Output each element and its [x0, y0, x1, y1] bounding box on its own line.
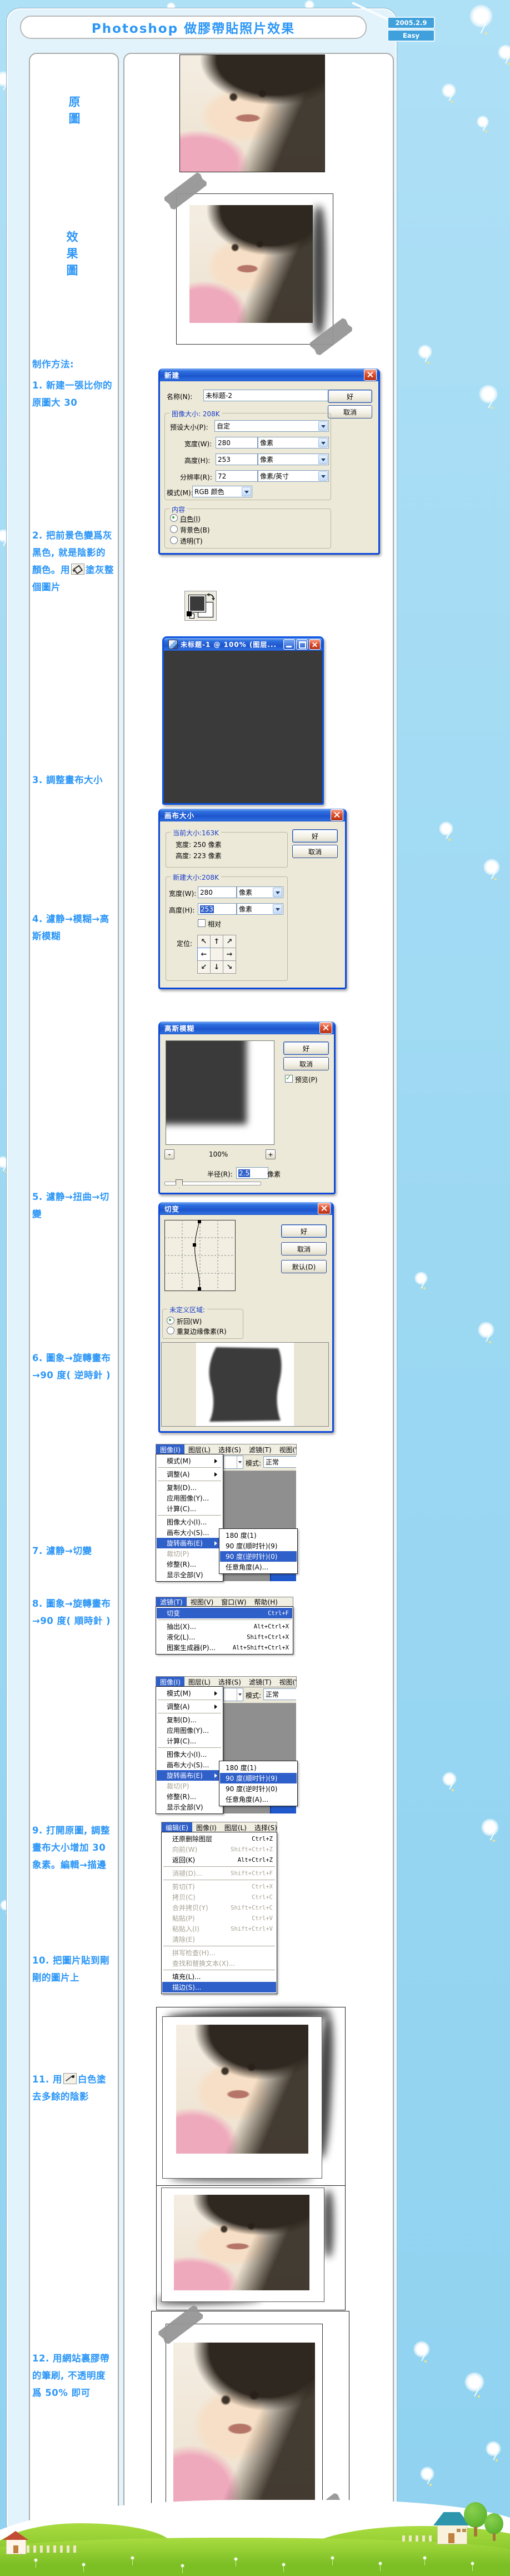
sidebar-panel	[29, 53, 119, 2533]
flower	[282, 2563, 285, 2566]
flower	[82, 2563, 85, 2566]
menu-item[interactable]: 计算(C)...	[157, 1503, 222, 1514]
paint-bucket-icon	[71, 564, 84, 575]
name-input[interactable]: 未标题-2	[203, 390, 334, 401]
options-toolbar: 模式: 正常	[221, 1454, 296, 1471]
shear-dialog: 切变 好 取消 默认(D) 未定义区域: 折回(W) 重复边缘像素(R)	[158, 1202, 334, 1433]
blend-mode-select[interactable]: 正常	[263, 1456, 296, 1468]
menu-item[interactable]: 90 度(顺时针)(9)	[220, 1541, 297, 1551]
dialog-titlebar[interactable]: 高斯模糊	[160, 1022, 334, 1034]
options-toolbar: 模式: 正常	[221, 1686, 296, 1703]
step11-result-image	[156, 2185, 346, 2310]
flower	[379, 2562, 382, 2565]
dandelion-fluff	[481, 1818, 499, 1836]
menu-item[interactable]: 切变Ctrl+F	[157, 1608, 292, 1618]
menu-item[interactable]: 图像大小(I)...	[157, 1517, 222, 1527]
anchor-grid[interactable]: ↖↑↗←→↙↓↘	[198, 935, 236, 974]
date-badge: 2005.2.9	[387, 17, 435, 29]
zoom-in-button[interactable]: +	[266, 1149, 276, 1159]
sidebar-step-10: 10. 把圖片貼到剛剛的圖片上	[32, 1952, 114, 1986]
menu-item[interactable]: 90 度(逆时针)(0)	[220, 1551, 297, 1562]
final-photo	[173, 2343, 315, 2502]
dialog-titlebar[interactable]: 新建	[160, 368, 378, 381]
anchor-cell[interactable]: ↓	[210, 960, 223, 974]
dandelion-fluff	[469, 4, 493, 28]
menu-item[interactable]: 描边(S)...	[162, 1982, 276, 1992]
anchor-cell[interactable]: ↗	[223, 935, 236, 948]
fence-right	[402, 2535, 433, 2542]
menu-item[interactable]: 应用图像(Y)...	[157, 1493, 222, 1503]
menu-item[interactable]: 图像大小(I)...	[157, 1749, 222, 1760]
dialog-title: 切变	[164, 1203, 179, 1214]
menu-item[interactable]: 填充(L)...	[162, 1971, 276, 1982]
dialog-titlebar[interactable]: 切变	[160, 1202, 332, 1215]
dandelion-fluff	[442, 1772, 457, 1786]
foreground-background-swatch[interactable]	[184, 591, 217, 621]
dandelion-fluff	[464, 2372, 484, 2392]
menubar-item[interactable]: 图层(L)	[184, 1677, 214, 1687]
menubar-item[interactable]: 选择(S)	[251, 1822, 277, 1832]
dandelion-fluff	[477, 116, 489, 128]
menu-item[interactable]: 抽出(X)...Alt+Ctrl+X	[157, 1621, 292, 1632]
house-window	[457, 2529, 461, 2532]
menu-item[interactable]: 拷贝(C)Ctrl+C	[162, 1892, 276, 1902]
current-height: 高度: 223 像素	[176, 851, 222, 860]
shear-preview	[161, 1342, 329, 1427]
document-icon	[168, 640, 178, 649]
menu-item[interactable]: 复制(D)...	[157, 1482, 222, 1493]
menu-item[interactable]: 旋转画布(E)	[157, 1770, 222, 1781]
anchor-label: 定位:	[177, 939, 192, 948]
name-label: 名称(N):	[167, 392, 192, 401]
dandelion-fluff	[418, 345, 432, 359]
flower	[131, 2557, 134, 2559]
menu-item[interactable]: 修整(R)...	[157, 1559, 222, 1569]
blend-mode-select[interactable]: 正常	[263, 1688, 296, 1700]
image-menu-panel: 模式(M)调整(A)复制(D)...应用图像(Y)...计算(C)...图像大小…	[156, 1686, 223, 1814]
menubar-item[interactable]: 编辑(E)	[162, 1822, 192, 1832]
menu-item[interactable]: 裁切(P)	[157, 1781, 222, 1791]
info-badges: 2005.2.9 Easy	[387, 17, 435, 42]
menubar-item[interactable]: 选择(S)	[214, 1677, 245, 1687]
zoom-out-button[interactable]: -	[164, 1149, 174, 1159]
menubar-item[interactable]: 滤镜(T)	[156, 1597, 187, 1607]
menu-item[interactable]: 模式(M)	[157, 1688, 222, 1698]
ok-button[interactable]: 好	[328, 390, 372, 403]
menu-item[interactable]: 裁切(P)	[157, 1548, 222, 1559]
width-unit-select[interactable]: 像素	[237, 886, 283, 898]
menu-item[interactable]: 液化(L)...Shift+Ctrl+X	[157, 1632, 292, 1642]
fence-left	[27, 2545, 78, 2553]
page-title: Photoshop 做膠帶貼照片效果	[92, 18, 295, 37]
width-unit-select[interactable]: 像素	[258, 437, 329, 449]
dandelion-fluff	[442, 83, 456, 98]
menu-item[interactable]: 应用图像(Y)...	[157, 1725, 222, 1736]
shadow-right	[323, 2190, 333, 2257]
house-door	[13, 2545, 18, 2553]
title-bar: Photoshop 做膠帶貼照片效果	[20, 16, 367, 39]
menu-item[interactable]: 180 度(1)	[220, 1530, 297, 1541]
page: Photoshop 做膠帶貼照片效果 2005.2.9 Easy 原圖 效果圖 …	[0, 0, 510, 2576]
menu-item[interactable]: 粘贴(P)Ctrl+V	[162, 1913, 276, 1924]
preview-checkbox[interactable]	[285, 1075, 293, 1083]
blurred-square	[166, 1040, 247, 1124]
preset-label: 预设大小(P):	[170, 422, 208, 432]
sidebar-step-9: 9. 打開原圖, 調整畫布大小增加 30 象素。編輯→描邊	[32, 1822, 114, 1874]
height-input[interactable]: 253	[216, 454, 258, 465]
menubar-item[interactable]: 图像(I)	[156, 1444, 184, 1454]
image-menu-screenshot-ccw: 模式: 正常 图像(I)图层(L)选择(S)滤镜(T)视图(V 模式(M)调整(…	[156, 1444, 296, 1581]
menu-item[interactable]: 消褪(D)...Shift+Ctrl+F	[162, 1868, 276, 1879]
menu-item[interactable]: 90 度(逆时针)(0)	[220, 1783, 297, 1794]
menubar-item[interactable]: 视图(V)	[187, 1597, 218, 1607]
flower	[331, 2557, 334, 2559]
radio-white[interactable]	[170, 514, 178, 522]
dialog-titlebar[interactable]: 画布大小	[160, 809, 345, 821]
minimize-button[interactable]	[283, 639, 295, 650]
flower	[181, 2564, 184, 2567]
menubar-item[interactable]: 滤镜(T)	[245, 1677, 276, 1687]
anchor-cell[interactable]: →	[223, 948, 236, 961]
menubar-item[interactable]: 帮助(H)	[251, 1597, 282, 1607]
zoom-level: 100%	[209, 1150, 228, 1158]
current-size-group: 当前大小:163K	[166, 832, 288, 868]
close-icon[interactable]	[331, 809, 343, 821]
height-unit-select[interactable]: 像素	[258, 454, 329, 465]
original-photo	[179, 54, 325, 172]
default-colors-icon[interactable]	[187, 611, 194, 619]
height-label: 高度(H):	[184, 456, 210, 465]
current-width: 宽度: 250 像素	[176, 840, 222, 849]
width-input[interactable]: 280	[216, 437, 258, 449]
blur-preview	[166, 1040, 274, 1145]
document-window: 未标题-1 @ 100% (图层...	[162, 636, 324, 805]
menu-item[interactable]: 旋转画布(E)	[157, 1538, 222, 1548]
dandelion-fluff	[498, 44, 510, 60]
label-original-image: 原圖	[66, 96, 82, 129]
gaussian-blur-dialog: 高斯模糊 - 100% + 半径(R): 2.5 像素 好 取消 预览(P)	[158, 1022, 336, 1194]
sidebar-step-1: 1. 新建一張比你的原圖大 30	[32, 377, 114, 411]
effect-photo-image	[189, 205, 313, 323]
sidebar-step-5: 5. 濾静→扭曲→切變	[32, 1188, 114, 1223]
menu-item[interactable]: 粘贴入(I)Shift+Ctrl+V	[162, 1924, 276, 1934]
image-menu-panel: 模式(M)调整(A)复制(D)...应用图像(Y)...计算(C)...图像大小…	[156, 1454, 223, 1582]
sidebar-step-6: 6. 圖象→旋轉畫布→90 度( 逆時針 )	[32, 1349, 114, 1384]
menubar: 图像(I)图层(L)选择(S)滤镜(T)视图(V	[156, 1444, 297, 1455]
menu-item[interactable]: 拼写检查(H)...	[162, 1947, 276, 1958]
house-door	[448, 2533, 454, 2543]
dandelion-fluff	[413, 2341, 430, 2358]
menubar-item[interactable]: 图层(L)	[184, 1444, 214, 1454]
menubar-item[interactable]: 图像(I)	[156, 1677, 184, 1687]
swap-colors-icon[interactable]	[207, 594, 214, 600]
house-window	[462, 2529, 466, 2532]
maximize-button[interactable]	[296, 639, 308, 650]
dandelion-fluff	[414, 1272, 428, 1285]
sidebar-step-11: 11. 用白色塗去多餘的陰影	[32, 2071, 114, 2105]
dandelion-fluff	[479, 385, 498, 403]
tree-trunk	[493, 2533, 496, 2541]
label-effect-image: 效果圖	[63, 231, 80, 281]
default-button[interactable]: 默认(D)	[281, 1260, 327, 1273]
sidebar-step-7: 7. 濾静→切變	[32, 1542, 114, 1559]
dandelion-fluff	[486, 2441, 501, 2457]
cleaned-photo	[174, 2195, 309, 2290]
menu-item[interactable]: 返回(K)Alt+Ctrl+Z	[162, 1855, 276, 1865]
anchor-cell[interactable]: ←	[197, 948, 211, 961]
menu-item[interactable]: 画布大小(S)...	[157, 1760, 222, 1770]
flower	[471, 2562, 474, 2565]
tree	[464, 2502, 487, 2528]
menubar-item[interactable]: 图层(L)	[221, 1822, 251, 1832]
menu-item[interactable]: 复制(D)...	[157, 1715, 222, 1725]
rotate-canvas-submenu: 180 度(1)90 度(顺时针)(9)90 度(逆时针)(0)任意角度(A).…	[219, 1528, 298, 1574]
relative-checkbox[interactable]	[198, 919, 206, 927]
close-icon[interactable]	[364, 369, 377, 381]
dialog-title: 新建	[164, 370, 179, 380]
menu-item[interactable]: 任意角度(A)...	[220, 1562, 297, 1572]
dandelion-fluff	[420, 2467, 434, 2481]
width-input[interactable]: 280	[198, 886, 237, 898]
anchor-cell[interactable]: ↑	[210, 935, 223, 948]
sidebar-heading-method: 制作方法:	[32, 356, 114, 373]
flower	[34, 2559, 37, 2562]
document-title: 未标题-1 @ 100% (图层...	[181, 640, 277, 649]
menubar-item[interactable]: 选择(S)	[214, 1444, 245, 1454]
width-label: 宽度(W):	[184, 439, 212, 449]
height-input[interactable]: 253	[198, 903, 237, 915]
dandelion-fluff	[483, 859, 500, 875]
dialog-title: 高斯模糊	[164, 1023, 194, 1033]
resolution-input[interactable]: 72	[216, 470, 258, 482]
menu-item[interactable]: 画布大小(S)...	[157, 1527, 222, 1538]
filter-menu-panel: 切变Ctrl+F抽出(X)...Alt+Ctrl+X液化(L)...Shift+…	[156, 1606, 293, 1655]
polaroid	[161, 2188, 324, 2302]
menu-item[interactable]: 显示全部(V)	[157, 1569, 222, 1580]
pasted-photo	[176, 2025, 308, 2154]
anchor-cell[interactable]	[210, 948, 223, 961]
menubar-item[interactable]: 滤镜(T)	[245, 1444, 276, 1454]
menu-item[interactable]: 合并拷贝(Y)Shift+Ctrl+C	[162, 1902, 276, 1913]
flower	[234, 2558, 237, 2560]
radio-wrap-around[interactable]	[167, 1317, 174, 1324]
menu-item[interactable]: 调整(A)	[157, 1701, 222, 1712]
menubar-item[interactable]: 视图(V	[276, 1677, 297, 1687]
tree	[484, 2513, 503, 2534]
sidebar-step-8: 8. 圖象→旋轉畫布→90 度( 順時針 )	[32, 1595, 114, 1630]
menubar: 编辑(E)图像(I)图层(L)选择(S)	[161, 1822, 277, 1833]
resolution-label: 分辨率(R):	[180, 472, 212, 482]
menubar-item[interactable]: 窗口(W)	[217, 1597, 250, 1607]
menu-item[interactable]: 显示全部(V)	[157, 1802, 222, 1812]
new-dialog: 新建 名称(N): 未标题-2 好 取消 图像大小: 208K 预设大小(P):…	[158, 368, 380, 555]
ok-button[interactable]: 好	[292, 829, 338, 843]
menu-item[interactable]: 调整(A)	[157, 1469, 222, 1479]
menu-item[interactable]: 模式(M)	[157, 1456, 222, 1466]
radius-input[interactable]: 2.5	[236, 1167, 268, 1179]
dandelion-fluff	[439, 821, 453, 836]
radius-label: 半径(R):	[207, 1169, 233, 1179]
radio-transparent[interactable]	[170, 536, 178, 544]
brush-icon	[63, 2073, 77, 2084]
house-left	[3, 2532, 28, 2554]
document-titlebar[interactable]: 未标题-1 @ 100% (图层...	[164, 638, 322, 651]
sidebar-step-4: 4. 濾静→模糊→高斯模糊	[32, 910, 114, 945]
sheared-shape	[196, 1343, 294, 1426]
brush-preset-picker[interactable]	[223, 1688, 243, 1701]
preset-select[interactable]: 自定	[214, 420, 329, 432]
close-icon[interactable]	[319, 1022, 332, 1034]
dandelion-fluff	[478, 1322, 494, 1338]
menu-item[interactable]: 向前(W)Shift+Ctrl+Z	[162, 1844, 276, 1855]
sidebar-step-3: 3. 調整畫布大小	[32, 771, 114, 789]
step10-result-image	[156, 2007, 346, 2186]
edit-menu-screenshot: 编辑(E)图像(I)图层(L)选择(S) 还原删除图层Ctrl+Z向前(W)Sh…	[161, 1822, 277, 1997]
image-menu-screenshot-cw: 模式: 正常 图像(I)图层(L)选择(S)滤镜(T)视图(V 模式(M)调整(…	[156, 1676, 296, 1813]
menu-item[interactable]: 图案生成器(P)...Alt+Shift+Ctrl+X	[157, 1642, 292, 1653]
menu-item[interactable]: 清除(E)	[162, 1934, 276, 1945]
polaroid	[166, 2324, 323, 2522]
menu-item[interactable]: 修整(R)...	[157, 1791, 222, 1802]
anchor-cell[interactable]: ↖	[197, 935, 211, 948]
cancel-button[interactable]: 取消	[283, 1057, 329, 1070]
shear-curve-grid[interactable]	[164, 1220, 236, 1291]
rotate-canvas-submenu: 180 度(1)90 度(顺时针)(9)90 度(逆时针)(0)任意角度(A).…	[219, 1761, 298, 1806]
tree-trunk	[474, 2527, 477, 2537]
menu-item[interactable]: 剪切(T)Ctrl+X	[162, 1881, 276, 1892]
menubar: 图像(I)图层(L)选择(S)滤镜(T)视图(V	[156, 1676, 297, 1687]
height-unit-select[interactable]: 像素	[237, 903, 283, 915]
anchor-cell[interactable]: ↘	[223, 960, 236, 974]
edit-menu-panel: 还原删除图层Ctrl+Z向前(W)Shift+Ctrl+Z返回(K)Alt+Ct…	[161, 1832, 277, 1994]
close-icon[interactable]	[318, 1203, 331, 1214]
menu-item[interactable]: 180 度(1)	[220, 1762, 297, 1773]
ok-button[interactable]: 好	[283, 1042, 329, 1055]
close-icon[interactable]	[309, 639, 321, 650]
photo-shadow	[312, 206, 326, 335]
dialog-title: 画布大小	[164, 810, 194, 820]
mode-label: 模式(M):	[167, 488, 193, 497]
canvas-filled-gray	[164, 651, 322, 803]
anchor-cell[interactable]: ↙	[197, 960, 211, 974]
menu-item[interactable]: 还原删除图层Ctrl+Z	[162, 1833, 276, 1844]
difficulty-badge: Easy	[387, 29, 435, 42]
menu-item[interactable]: 90 度(顺时针)(9)	[220, 1773, 297, 1783]
menu-item[interactable]: 查找和替换文本(X)...	[162, 1958, 276, 1969]
menu-item[interactable]: 计算(C)...	[157, 1736, 222, 1746]
polaroid	[162, 2016, 322, 2179]
menu-item[interactable]: 任意角度(A)...	[220, 1794, 297, 1805]
menubar-item[interactable]: 图像(I)	[192, 1822, 221, 1832]
radio-repeat-edge-pixels[interactable]	[167, 1327, 174, 1334]
brush-preset-picker[interactable]	[223, 1456, 243, 1469]
ok-button[interactable]: 好	[281, 1224, 327, 1238]
menubar-item[interactable]: 视图(V	[276, 1444, 297, 1454]
sidebar-step-12: 12. 用網站裏膠帶的筆刷, 不透明度爲 50% 即可	[32, 2350, 114, 2401]
filter-menu-screenshot: 滤镜(T)视图(V)窗口(W)帮助(H) 切变Ctrl+F抽出(X)...Alt…	[156, 1597, 293, 1658]
radio-background-color[interactable]	[170, 525, 178, 533]
cancel-button[interactable]: 取消	[281, 1242, 327, 1255]
slider-thumb[interactable]	[176, 1179, 183, 1188]
mode-select[interactable]: RGB 颜色	[192, 486, 252, 497]
effect-photo	[176, 193, 333, 345]
canvas-size-dialog: 画布大小 好 取消 当前大小:163K 宽度: 250 像素 高度: 223 像…	[158, 809, 347, 989]
foreground-color-swatch[interactable]	[188, 595, 206, 612]
cancel-button[interactable]: 取消	[328, 405, 372, 418]
flower	[423, 2557, 426, 2559]
resolution-unit-select[interactable]: 像素/英寸	[258, 470, 329, 482]
cancel-button[interactable]: 取消	[292, 845, 338, 858]
sidebar-step-2: 2. 把前景色變爲灰黑色, 就是陰影的顏色。用塗灰整個圖片	[32, 527, 114, 596]
